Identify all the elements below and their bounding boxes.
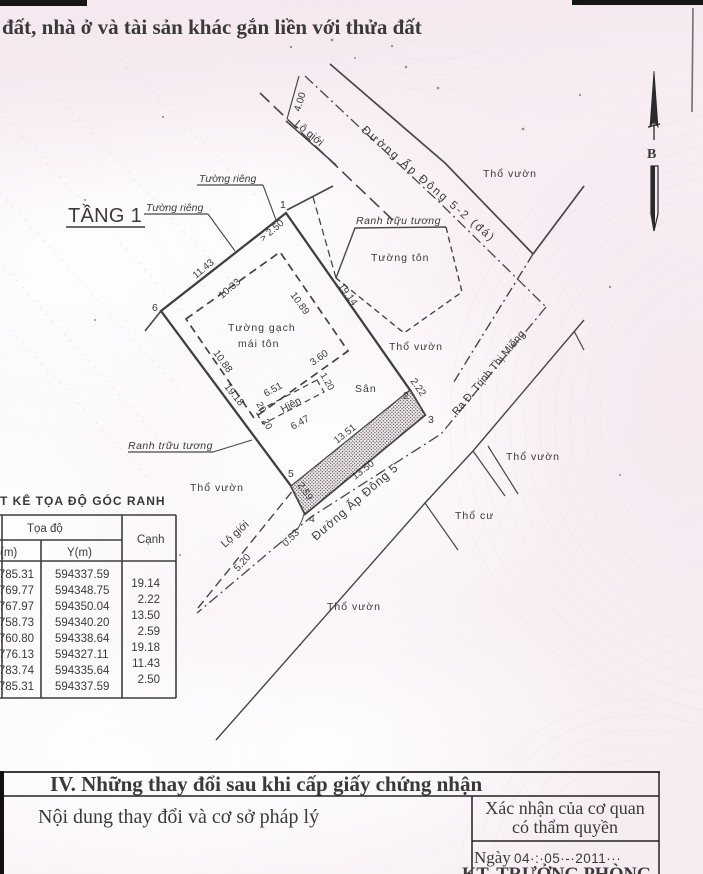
svg-text:20: 20 — [253, 400, 268, 415]
svg-text:2: 2 — [403, 390, 409, 402]
svg-text:10.89: 10.89 — [288, 290, 312, 317]
svg-text:TẦNG 1: TẦNG 1 — [68, 204, 142, 227]
svg-text:0.53: 0.53 — [280, 527, 302, 549]
svg-text:776.13: 776.13 — [0, 649, 34, 661]
svg-text:mái tôn: mái tôn — [238, 338, 279, 350]
svg-text:594340.20: 594340.20 — [55, 617, 109, 629]
svg-text:Y(m): Y(m) — [67, 547, 92, 559]
svg-text:Thổ vườn: Thổ vườn — [483, 168, 537, 180]
svg-text:1.20: 1.20 — [317, 371, 336, 393]
svg-text:2.50: 2.50 — [138, 674, 160, 686]
svg-text:594350.04: 594350.04 — [55, 601, 110, 613]
svg-text:19.14: 19.14 — [336, 281, 360, 308]
svg-text:Tường tôn: Tường tôn — [371, 252, 430, 264]
svg-text:Tường riêng: Tường riêng — [199, 173, 257, 185]
svg-text:769.77: 769.77 — [0, 585, 34, 597]
svg-text:6.47: 6.47 — [289, 413, 312, 432]
svg-text:Lộ giới: Lộ giới — [292, 118, 325, 149]
svg-text:(m): (m) — [0, 547, 17, 559]
svg-text:Ranh trữu tương: Ranh trữu tương — [128, 440, 213, 452]
svg-text:594335.64: 594335.64 — [55, 665, 110, 677]
svg-text:KT. TRƯỞNG PHÒNG: KT. TRƯỞNG PHÒNG — [462, 863, 651, 874]
svg-text:Xác nhận của cơ quan: Xác nhận của cơ quan — [485, 798, 644, 818]
svg-text:Thổ vườn: Thổ vườn — [389, 341, 443, 353]
svg-text:Ra Đ. Trịnh Thị Miếng: Ra Đ. Trịnh Thị Miếng — [450, 328, 528, 418]
svg-text:Tường riêng: Tường riêng — [146, 202, 204, 214]
svg-text:Cạnh: Cạnh — [137, 534, 165, 546]
svg-text:đất, nhà ở và tài sản khác gắn: đất, nhà ở và tài sản khác gắn liền với … — [2, 15, 422, 39]
svg-text:04·:·05·-·2011···: 04·:·05·-·2011··· — [514, 851, 621, 866]
svg-text:Tường gạch: Tường gạch — [228, 322, 296, 334]
svg-text:6: 6 — [152, 302, 158, 314]
svg-text:594337.59: 594337.59 — [55, 681, 109, 693]
svg-text:5: 5 — [288, 468, 294, 480]
svg-text:2.59: 2.59 — [138, 626, 160, 638]
svg-text:Thổ vườn: Thổ vườn — [506, 451, 560, 463]
svg-text:Thổ vườn: Thổ vườn — [190, 482, 244, 494]
svg-text:594348.75: 594348.75 — [55, 585, 109, 597]
svg-text:11.43: 11.43 — [132, 658, 160, 670]
svg-text:1: 1 — [280, 199, 286, 211]
svg-text:B: B — [647, 147, 656, 162]
svg-text:767.97: 767.97 — [0, 601, 34, 613]
svg-text:Lộ giới: Lộ giới — [219, 519, 252, 551]
svg-text:785.31: 785.31 — [0, 681, 34, 693]
svg-text:19.14: 19.14 — [131, 578, 160, 590]
svg-text:760.80: 760.80 — [0, 633, 34, 645]
svg-text:785.31: 785.31 — [0, 569, 34, 581]
svg-text:594337.59: 594337.59 — [55, 569, 109, 581]
svg-text:IV. Những thay đổi sau khi cấp: IV. Những thay đổi sau khi cấp giấy chứn… — [50, 772, 482, 796]
svg-text:6.51: 6.51 — [262, 380, 285, 399]
svg-text:758.73: 758.73 — [0, 617, 34, 629]
svg-text:Thổ vườn: Thổ vườn — [327, 601, 381, 613]
svg-text:Tọa độ: Tọa độ — [27, 523, 63, 535]
svg-text:5.20: 5.20 — [232, 552, 253, 574]
svg-text:783.74: 783.74 — [0, 665, 35, 677]
svg-text:có thẩm quyền: có thẩm quyền — [512, 817, 618, 837]
svg-text:Thổ cư: Thổ cư — [455, 510, 494, 522]
svg-text:T KÊ TỌA ĐỘ GÓC RANH: T KÊ TỌA ĐỘ GÓC RANH — [0, 493, 166, 508]
svg-text:3: 3 — [428, 414, 434, 426]
svg-text:4.00: 4.00 — [292, 91, 308, 113]
svg-text:2.22: 2.22 — [138, 594, 160, 606]
svg-text:594338.64: 594338.64 — [55, 633, 110, 645]
svg-text:19.18: 19.18 — [222, 382, 247, 409]
svg-text:Nội dung thay đổi và cơ sở phá: Nội dung thay đổi và cơ sở pháp lý — [38, 806, 319, 828]
svg-text:594327.11: 594327.11 — [55, 649, 109, 661]
svg-text:13.50: 13.50 — [131, 610, 160, 622]
svg-text:Sân: Sân — [355, 383, 377, 395]
svg-text:19.18: 19.18 — [131, 642, 160, 654]
svg-text:Ranh trữu tương: Ranh trữu tương — [356, 215, 441, 227]
